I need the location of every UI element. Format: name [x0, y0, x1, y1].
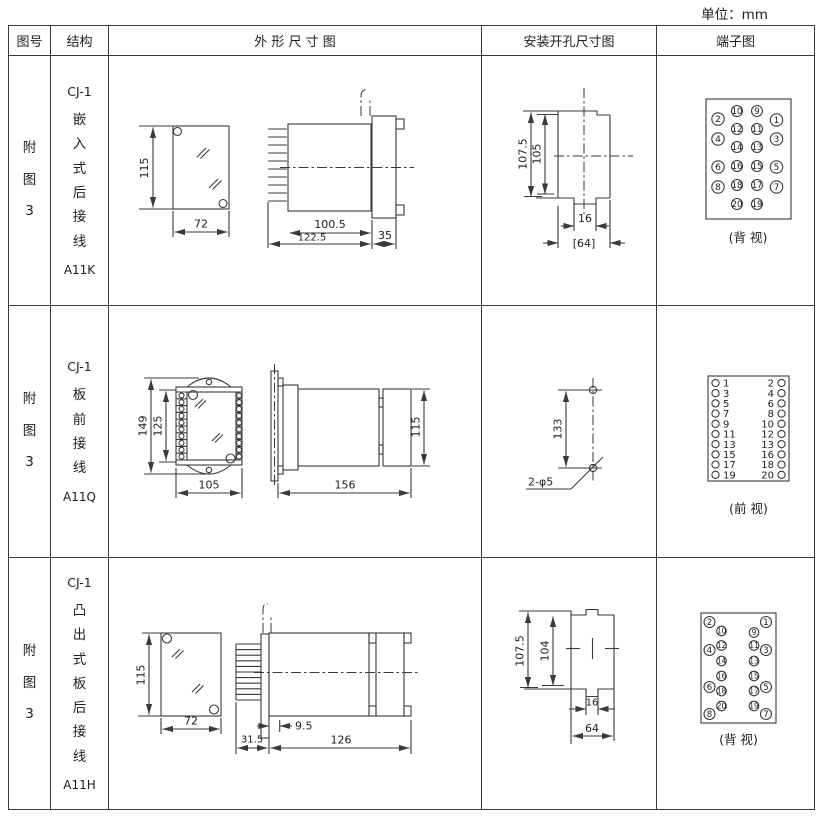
- header-figure-no: 图号: [9, 26, 51, 56]
- terminal-number: 14: [717, 657, 727, 666]
- view-label: (背 视): [719, 732, 758, 747]
- front-view: [138, 633, 221, 734]
- terminal-cell-a11k: 101214161820 91113151719 2468 1357 (背 视): [657, 56, 814, 306]
- dim-label: 105: [199, 479, 220, 492]
- view-label: (前 视): [729, 501, 768, 516]
- header-label: 外 形 尺 寸 图: [254, 31, 336, 50]
- terminal-number: 10: [717, 627, 727, 636]
- terminal-circle: [778, 420, 785, 427]
- mounting-type-label: 板前接线: [72, 383, 87, 480]
- dim-label: 72: [194, 218, 208, 231]
- structure-cell-2: CJ-1 板前接线 A11Q: [51, 306, 109, 558]
- terminal-number: 11: [752, 125, 763, 135]
- spec-table: 图号 结构 外 形 尺 寸 图 安装开孔尺寸图 端子图 附图3 CJ-1 嵌入式…: [8, 25, 815, 810]
- terminal-circle: [778, 441, 785, 448]
- dim-label: [64]: [573, 237, 596, 250]
- terminal-number: 4: [707, 646, 712, 656]
- cutout-outline: [519, 610, 619, 745]
- terminal-circle: [237, 400, 242, 405]
- terminal-number: 5: [763, 683, 768, 693]
- terminal-number: 1: [763, 618, 768, 628]
- terminal-circle: [778, 430, 785, 437]
- terminal-column: 101214161820: [717, 626, 727, 711]
- terminal-cell-a11q: 135791113151719 2468101213161820 (前 视): [657, 306, 814, 558]
- terminal-diagram-a11h: 2468 1357 101214161820 91113151719 (背 视): [657, 558, 814, 809]
- figure-no: 附图3: [21, 133, 38, 228]
- terminal-number: 7: [763, 710, 768, 720]
- front-view: [139, 126, 229, 237]
- header-terminal: 端子图: [657, 26, 814, 56]
- terminal-number: 11: [749, 641, 759, 650]
- header-cutout-dims: 安装开孔尺寸图: [482, 26, 657, 56]
- dim-label: 105: [531, 144, 544, 165]
- terminal-number: 16: [732, 162, 743, 172]
- terminal-circle: [778, 410, 785, 417]
- header-label: 图号: [16, 31, 42, 50]
- terminal-circle: [179, 420, 184, 425]
- figure-no-cell-3: 附图3: [9, 558, 51, 809]
- glass-hatch: [212, 433, 223, 443]
- terminal-circle: [778, 390, 785, 397]
- terminal-circle: [179, 393, 184, 398]
- terminal-column: 1357: [770, 114, 782, 193]
- cutout-drawing-a11h: 107.5 104 16 64: [482, 558, 657, 809]
- dim-label: 31.5: [241, 735, 263, 746]
- terminal-number: 4: [715, 135, 721, 145]
- terminal-circle: [712, 420, 719, 427]
- dim-label: 107.5: [514, 635, 527, 667]
- terminal-circle: [179, 447, 184, 452]
- unit-note: 单位：mm: [656, 3, 813, 23]
- glass-hatch: [197, 148, 210, 159]
- code-label: A11K: [64, 263, 95, 277]
- dim-label: 122.5: [298, 233, 327, 244]
- terminal-circle: [778, 379, 785, 386]
- terminal-circle: [179, 441, 184, 446]
- handle-outline: [263, 604, 271, 633]
- structure-cell-1: CJ-1 嵌入式后接线 A11K: [51, 56, 109, 306]
- terminal-number: 6: [707, 683, 712, 693]
- terminal-number: 12: [732, 125, 743, 135]
- header-label: 结构: [66, 31, 92, 50]
- header-label: 安装开孔尺寸图: [523, 31, 614, 50]
- figure-no-cell-2: 附图3: [9, 306, 51, 558]
- page: { "unit_note": "单位：mm", "headers": { "co…: [0, 0, 821, 820]
- terminal-number: 6: [715, 163, 721, 173]
- structure-cell-3: CJ-1 凸出式板后接线 A11H: [51, 558, 109, 809]
- front-view: [144, 378, 242, 498]
- terminal-circle: [712, 400, 719, 407]
- terminal-column: 2468: [712, 113, 724, 193]
- figure-no-cell-1: 附图3: [9, 56, 51, 306]
- terminal-column: 135791113151719: [712, 379, 736, 482]
- cutout-cell-a11h: 107.5 104 16 64: [482, 558, 657, 809]
- terminal-circle: [179, 427, 184, 432]
- terminal-circle: [778, 471, 785, 478]
- model-label: CJ-1: [67, 359, 91, 374]
- terminal-block: [701, 613, 776, 723]
- terminal-column: 101214161820: [732, 106, 743, 211]
- dim-label: 16: [586, 698, 599, 709]
- terminal-number: 8: [707, 710, 712, 720]
- terminal-number: 3: [774, 135, 780, 145]
- terminal-circle: [237, 434, 242, 439]
- terminal-circle: [712, 390, 719, 397]
- cutout-cell-a11q: 133 2-φ5: [482, 306, 657, 558]
- terminal-number: 20: [732, 200, 743, 210]
- terminal-circle: [237, 407, 242, 412]
- figure-no: 附图3: [21, 636, 38, 731]
- terminal-column: 1357: [761, 617, 772, 721]
- dim-label: 100.5: [314, 218, 346, 231]
- glass-hatch: [195, 399, 206, 409]
- code-label: A11H: [63, 778, 96, 792]
- terminal-diagram-a11k: 101214161820 91113151719 2468 1357 (背 视): [657, 56, 814, 306]
- terminal-number: 10: [732, 107, 743, 117]
- cutout-cell-a11k: 107.5 105 16 [64]: [482, 56, 657, 306]
- terminal-circle: [179, 413, 184, 418]
- cutout-drawing-a11k: 107.5 105 16 [64]: [482, 56, 657, 306]
- terminal-circle: [778, 461, 785, 468]
- leader-line: [571, 457, 603, 489]
- outline-drawing-a11h: 115 72: [109, 558, 482, 809]
- cutout-outline: [526, 378, 603, 489]
- terminal-diagram-a11q: 135791113151719 2468101213161820 (前 视): [657, 306, 814, 558]
- dim-label: 104: [539, 641, 552, 662]
- outline-cell-a11q: 149 125 105 115 156: [109, 306, 482, 558]
- figure-no: 附图3: [21, 384, 38, 479]
- view-label: (背 视): [729, 230, 768, 245]
- terminal-number: 13: [752, 143, 763, 153]
- terminal-block: [708, 376, 789, 481]
- outline-cell-a11h: 115 72: [109, 558, 482, 809]
- terminal-circle: [179, 434, 184, 439]
- dim-label: 107.5: [517, 138, 530, 170]
- terminal-number: 20: [717, 702, 727, 711]
- terminal-circle: [237, 441, 242, 446]
- glass-hatch: [192, 684, 204, 694]
- cutout-drawing-a11q: 133 2-φ5: [482, 306, 657, 558]
- terminal-number: 9: [754, 107, 759, 117]
- side-view: [236, 604, 419, 754]
- glass-hatch: [209, 179, 222, 190]
- dim-label: 126: [331, 734, 352, 747]
- terminal-number: 3: [763, 646, 768, 656]
- dim-label: 9.5: [295, 720, 313, 733]
- handle-outline: [361, 90, 370, 116]
- mounting-type-label: 凸出式板后接线: [72, 599, 87, 769]
- dim-label: 149: [137, 416, 150, 437]
- terminal-circle: [237, 427, 242, 432]
- dim-label: 16: [578, 212, 592, 225]
- terminal-number: 2: [715, 115, 721, 125]
- glass-hatch: [172, 649, 184, 659]
- terminal-number: 2: [707, 618, 712, 628]
- terminal-circle: [712, 471, 719, 478]
- dim-label: 72: [184, 715, 198, 728]
- terminal-number: 17: [752, 181, 763, 191]
- outline-drawing-a11q: 149 125 105 115 156: [109, 306, 482, 558]
- terminal-strip-left: [176, 392, 187, 460]
- terminal-number: 1: [774, 116, 780, 126]
- terminal-circle: [237, 413, 242, 418]
- terminal-number: 9: [752, 628, 757, 637]
- terminal-number: 19: [752, 200, 763, 210]
- dim-label: 2-φ5: [528, 476, 553, 489]
- dim-label: 156: [335, 479, 356, 492]
- terminal-circle: [712, 430, 719, 437]
- terminal-circle: [179, 407, 184, 412]
- terminal-number: 18: [732, 181, 743, 191]
- model-label: CJ-1: [67, 575, 91, 590]
- terminal-circle: [778, 400, 785, 407]
- terminal-circle: [237, 454, 242, 459]
- terminal-circle: [712, 441, 719, 448]
- terminal-column: 2468101213161820: [761, 379, 785, 482]
- dim-label: 115: [410, 417, 423, 438]
- terminal-circle: [179, 400, 184, 405]
- terminal-column: 91113151719: [749, 628, 759, 711]
- terminal-circle: [179, 454, 184, 459]
- terminal-number: 20: [761, 470, 774, 481]
- terminal-number: 13: [749, 657, 759, 666]
- terminal-number: 19: [749, 702, 759, 711]
- dim-label: 115: [138, 158, 151, 179]
- terminal-circle: [712, 410, 719, 417]
- dim-label: 35: [378, 229, 392, 242]
- terminal-circle: [237, 447, 242, 452]
- header-label: 端子图: [716, 31, 755, 50]
- code-label: A11Q: [63, 490, 96, 504]
- terminal-circle: [237, 420, 242, 425]
- dim-label: 133: [552, 419, 565, 440]
- terminal-circle: [712, 451, 719, 458]
- header-structure: 结构: [51, 26, 109, 56]
- terminal-circle: [237, 393, 242, 398]
- outline-cell-a11k: 115 72 100.5 122.5 35: [109, 56, 482, 306]
- terminal-number: 15: [752, 162, 763, 172]
- terminal-column: 91113151719: [752, 106, 763, 211]
- terminal-cell-a11h: 2468 1357 101214161820 91113151719 (背 视): [657, 558, 814, 809]
- mounting-type-label: 嵌入式后接线: [72, 108, 87, 254]
- terminal-number: 16: [717, 672, 727, 681]
- terminal-number: 5: [774, 163, 780, 173]
- terminal-number: 18: [717, 687, 727, 696]
- terminal-number: 19: [723, 470, 736, 481]
- terminal-number: 15: [749, 672, 759, 681]
- terminal-number: 8: [715, 183, 721, 193]
- terminal-number: 12: [717, 641, 727, 650]
- dim-label: 115: [135, 665, 148, 686]
- terminal-circle: [712, 379, 719, 386]
- terminal-circle: [712, 461, 719, 468]
- terminal-number: 17: [749, 687, 759, 696]
- terminal-column: 2468: [704, 617, 715, 721]
- dim-label: 125: [152, 416, 165, 437]
- terminal-number: 7: [774, 183, 780, 193]
- terminal-pins: [268, 129, 287, 201]
- model-label: CJ-1: [67, 84, 91, 99]
- dim-label: 64: [585, 722, 599, 735]
- outline-drawing-a11k: 115 72 100.5 122.5 35: [109, 56, 482, 306]
- header-outline-dims: 外 形 尺 寸 图: [109, 26, 482, 56]
- terminal-circle: [778, 451, 785, 458]
- terminal-number: 14: [732, 143, 743, 153]
